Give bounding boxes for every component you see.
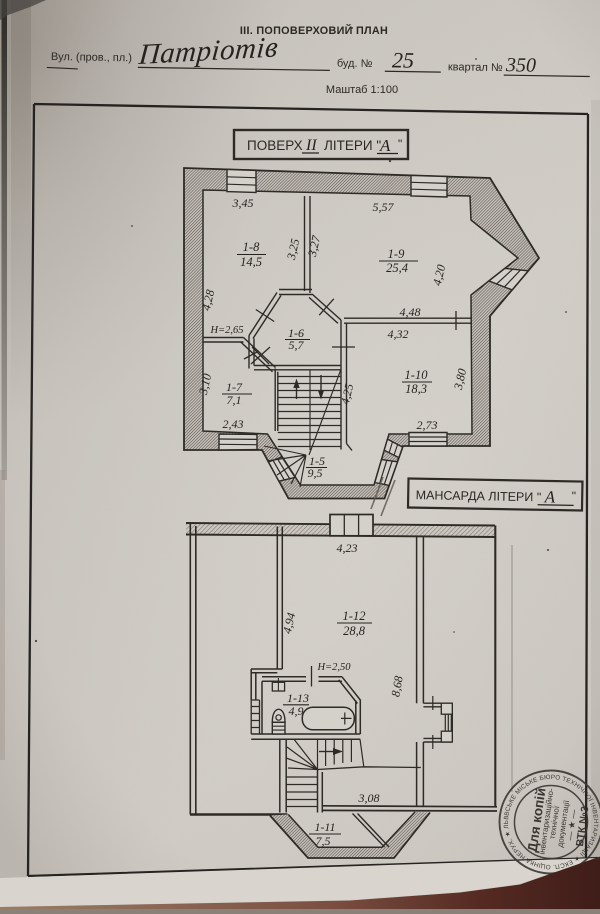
svg-text:": " — [572, 489, 577, 503]
svg-text:МАНСАРДА ЛІТЕРИ ": МАНСАРДА ЛІТЕРИ " — [416, 488, 542, 504]
svg-text:Н=2,50: Н=2,50 — [316, 662, 351, 673]
svg-text:1-7: 1-7 — [226, 380, 243, 394]
svg-text:1-12: 1-12 — [343, 609, 366, 623]
svg-text:5,7: 5,7 — [289, 338, 305, 352]
svg-text:Н=2,65: Н=2,65 — [209, 325, 243, 336]
svg-text:ЛІТЕРИ ": ЛІТЕРИ " — [324, 138, 381, 153]
svg-text:4,32: 4,32 — [388, 327, 409, 341]
svg-text:9,5: 9,5 — [308, 466, 323, 480]
svg-text:Маштаб 1:100: Маштаб 1:100 — [326, 84, 398, 96]
svg-text:3,08: 3,08 — [358, 791, 380, 805]
svg-text:3,45: 3,45 — [232, 196, 254, 210]
svg-text:7,5: 7,5 — [316, 834, 331, 848]
svg-text:7,1: 7,1 — [227, 393, 242, 407]
svg-text:квартал №: квартал № — [448, 61, 503, 74]
svg-text:350: 350 — [505, 54, 536, 76]
svg-text:ІІ: ІІ — [305, 137, 317, 154]
svg-text:5,57: 5,57 — [373, 200, 395, 214]
svg-text:4,48: 4,48 — [400, 305, 421, 319]
svg-text:2,43: 2,43 — [223, 417, 244, 431]
svg-text:25: 25 — [392, 47, 414, 72]
svg-text:": " — [398, 137, 402, 151]
svg-text:1-10: 1-10 — [405, 368, 429, 382]
svg-text:ПОВЕРХ: ПОВЕРХ — [247, 138, 303, 153]
svg-text:А: А — [379, 136, 391, 155]
svg-text:2,73: 2,73 — [417, 418, 438, 432]
svg-text:18,3: 18,3 — [405, 382, 427, 396]
svg-text:1-9: 1-9 — [388, 247, 405, 261]
svg-text:1-11: 1-11 — [314, 820, 335, 834]
svg-text:28,8: 28,8 — [343, 624, 366, 638]
svg-text:1-8: 1-8 — [243, 240, 260, 254]
svg-text:25,4: 25,4 — [386, 261, 408, 275]
svg-text:1-13: 1-13 — [287, 691, 309, 705]
svg-text:Вул. (пров., пл.): Вул. (пров., пл.) — [51, 51, 132, 64]
svg-text:4,9: 4,9 — [289, 704, 304, 718]
svg-text:4,23: 4,23 — [337, 541, 358, 555]
svg-text:А: А — [544, 487, 556, 506]
svg-text:14,5: 14,5 — [240, 255, 262, 269]
svg-text:буд. №: буд. № — [337, 58, 373, 71]
